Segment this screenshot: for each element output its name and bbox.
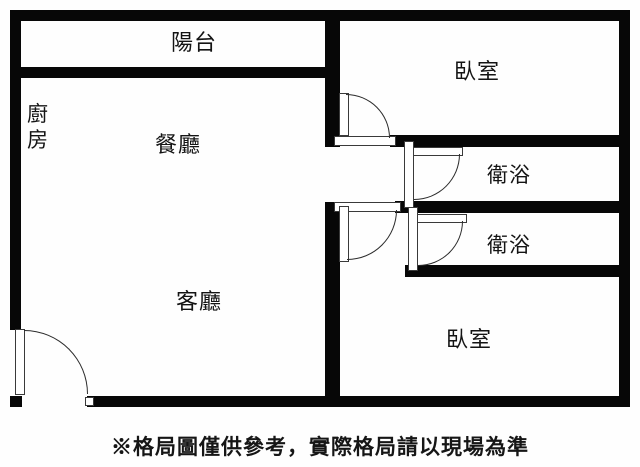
wall-outer-top (10, 10, 630, 21)
room-label-kitchen: 廚房 (27, 102, 51, 154)
room-label-bedroom-top: 臥室 (454, 60, 500, 84)
entrance-door-arc (24, 330, 88, 394)
room-label-balcony: 陽台 (171, 31, 217, 55)
bath1-door-arc (414, 154, 460, 200)
room-label-living: 客廳 (176, 290, 222, 314)
bedroom1-door-arc (346, 94, 390, 138)
wall-balcony (10, 67, 340, 78)
room-label-dining: 餐廳 (155, 133, 201, 157)
wall-mid-horizontal (395, 201, 630, 213)
wall-bath2-south (405, 265, 630, 277)
disclaimer-text: ※格局圖僅供參考，實際格局請以現場為準 (0, 431, 640, 461)
wall-outer-left (10, 10, 21, 330)
room-label-bedroom-bottom: 臥室 (446, 328, 492, 352)
entrance-door-jamb (85, 397, 94, 406)
wall-central-upper (325, 10, 340, 147)
wall-central-lower (325, 202, 340, 407)
wall-outer-bottom (87, 396, 630, 407)
room-label-bath-lower: 衛浴 (487, 234, 531, 258)
room-label-bath-upper: 衛浴 (487, 164, 531, 188)
wall-bottom-corner (10, 396, 22, 407)
wall-bedroom1-south (390, 135, 630, 147)
bath2-door-arc (418, 221, 463, 266)
floorplan-canvas: 陽台 廚房 餐廳 臥室 衛浴 衛浴 客廳 臥室 ※格局圖僅供參考，實際格局請以現… (0, 0, 640, 467)
bedroom2-door-arc (347, 210, 397, 260)
